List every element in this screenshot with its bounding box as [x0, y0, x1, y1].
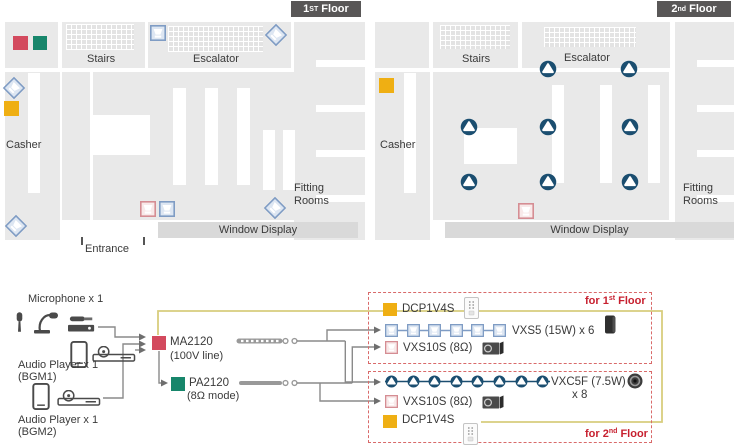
store-audio-system-diagram: 1ST Floor Window Display Stairs Escalato… — [0, 0, 734, 445]
vxc5f-speaker-product-icon — [627, 373, 643, 389]
map-area — [375, 22, 429, 68]
microphone-label: Microphone x 1 — [28, 293, 103, 306]
amp-pa-marker — [171, 377, 185, 391]
stairs-hatch — [440, 25, 510, 49]
corridor — [404, 73, 416, 193]
corridor — [600, 85, 612, 183]
bgm1-sub-label: (BGM1) — [18, 371, 57, 384]
escalator-label: Escalator — [564, 52, 610, 65]
ceiling-speaker-icon — [493, 375, 506, 388]
ceiling-speaker-icon — [460, 173, 478, 191]
ceiling-speaker-icon — [539, 118, 557, 136]
map-area — [62, 72, 90, 220]
audio-player-icon — [57, 390, 101, 406]
window-display-bar: Window Display — [445, 222, 734, 238]
wall-speaker-icon — [493, 324, 506, 337]
floor1-badge: 1ST Floor — [291, 1, 361, 17]
zone2-sub-label: VXS10S (8Ω) — [403, 396, 472, 409]
subwoofer-product-icon — [482, 341, 504, 355]
ma-mode: (100V line) — [170, 350, 223, 363]
ceiling-speaker-icon — [407, 375, 420, 388]
entrance-tick — [81, 237, 83, 245]
corridor — [697, 60, 734, 67]
ceiling-speaker-icon — [620, 60, 638, 78]
subwoofer-marker-icon — [385, 395, 398, 408]
corridor — [205, 88, 218, 185]
corridor — [263, 130, 275, 190]
ceiling-speaker-icon — [539, 60, 557, 78]
audio-player-icon — [92, 346, 136, 362]
escalator-hatch — [168, 26, 263, 52]
wall-speaker-icon — [385, 324, 398, 337]
escalator-label: Escalator — [193, 53, 239, 66]
corridor — [648, 85, 660, 183]
vxs5-label: VXS5 (15W) x 6 — [512, 325, 594, 338]
wall-speaker-icon — [428, 324, 441, 337]
wireless-microphone-icon — [68, 314, 96, 334]
ceiling-speaker-icon — [536, 375, 549, 388]
subwoofer-product-icon — [482, 395, 504, 409]
corridor — [237, 88, 250, 185]
bgm2-sub-label: (BGM2) — [18, 426, 57, 439]
wall-speaker-icon — [159, 201, 175, 217]
stairs-label: Stairs — [87, 53, 115, 66]
corridor — [316, 150, 365, 157]
vxc5f-count-label: x 8 — [572, 389, 587, 402]
zone2-controller-label: DCP1V4S — [402, 414, 454, 427]
wall-controller-marker — [4, 101, 19, 116]
gooseneck-microphone-icon — [34, 312, 64, 334]
vxc5f-label: VXC5F (7.5W) — [551, 376, 626, 389]
ceiling-speaker-icon — [539, 173, 557, 191]
wall-speaker-icon — [150, 25, 166, 41]
wall-speaker-icon — [471, 324, 484, 337]
entrance-label: Entrance — [85, 243, 129, 256]
ceiling-speaker-icon — [621, 173, 639, 191]
bgm2-label: Audio Player x 1 — [18, 414, 98, 427]
zone1-sub-label: VXS10S (8Ω) — [403, 342, 472, 355]
floor2-badge: 2nd Floor — [657, 1, 731, 17]
amp-pa-marker — [33, 36, 47, 50]
pa-name: PA2120 — [189, 377, 229, 390]
ceiling-speaker-icon — [621, 118, 639, 136]
wall-controller-icon — [463, 423, 478, 445]
zone-floor1-title: for 1st Floor — [585, 295, 646, 307]
casher-label: Casher — [380, 139, 415, 152]
casher-label: Casher — [6, 139, 41, 152]
ceiling-speaker-icon — [515, 375, 528, 388]
ceiling-speaker-icon — [460, 118, 478, 136]
escalator-hatch — [544, 27, 636, 47]
window-display-bar: Window Display — [158, 222, 358, 238]
stairs-hatch — [66, 24, 134, 50]
stairs-label: Stairs — [462, 53, 490, 66]
ceiling-speaker-icon — [428, 375, 441, 388]
ceiling-speaker-icon — [385, 375, 398, 388]
map-area-casher — [375, 72, 430, 240]
wall-controller-marker — [379, 78, 394, 93]
ceiling-speaker-icon — [471, 375, 484, 388]
corridor — [316, 105, 365, 112]
ma-name: MA2120 — [170, 336, 213, 349]
smartphone-icon — [32, 383, 50, 410]
corridor — [316, 60, 365, 67]
corridor — [283, 130, 295, 190]
wall-controller-icon — [464, 297, 479, 319]
corridor — [28, 73, 40, 193]
vxc5f-chain — [385, 375, 549, 388]
vxs5-chain — [385, 324, 506, 337]
subwoofer-marker-icon — [518, 203, 534, 219]
zone1-controller-label: DCP1V4S — [402, 303, 454, 316]
fitting-rooms-label: Fitting Rooms — [294, 182, 344, 208]
wall-speaker-icon — [407, 324, 420, 337]
corridor — [697, 105, 734, 112]
amp-ma-marker — [152, 336, 166, 350]
fitting-rooms-label: Fitting Rooms — [683, 182, 733, 208]
ceiling-speaker-icon — [450, 375, 463, 388]
corridor — [93, 115, 150, 155]
vxs5-speaker-product-icon — [604, 315, 617, 334]
wall-controller-marker — [383, 303, 397, 316]
bgm1-label: Audio Player x 1 — [18, 359, 98, 372]
wall-speaker-icon — [450, 324, 463, 337]
wall-controller-marker — [383, 415, 397, 428]
pa-mode: (8Ω mode) — [187, 390, 239, 403]
zone-floor2-title: for 2nd Floor — [585, 428, 648, 440]
amp-ma-marker — [13, 36, 28, 50]
corridor — [697, 150, 734, 157]
entrance-tick — [143, 237, 145, 245]
subwoofer-marker-icon — [385, 341, 398, 354]
subwoofer-marker-icon — [140, 201, 156, 217]
handheld-microphone-icon — [13, 311, 26, 334]
corridor — [173, 88, 186, 185]
